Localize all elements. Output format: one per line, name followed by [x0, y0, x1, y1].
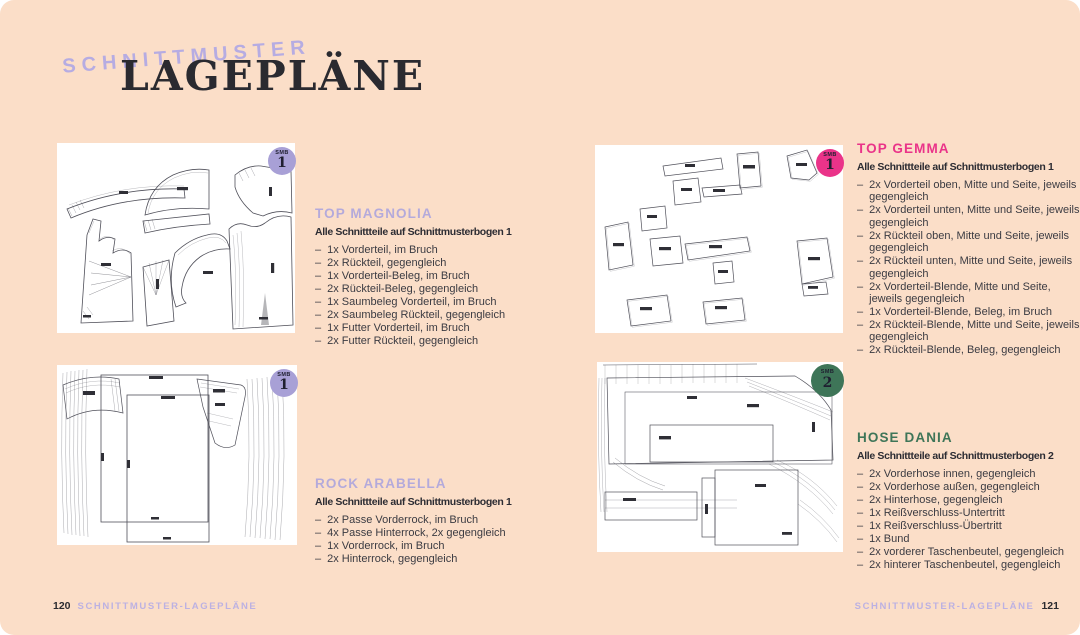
- pattern-diagram-top-magnolia: [57, 143, 295, 333]
- list-dash: –: [315, 335, 321, 347]
- footer-left: 120 SCHNITTMUSTER-LAGEPLÄNE: [53, 600, 257, 612]
- list-item: –1x Vorderteil-Blende, Beleg, im Bruch: [857, 306, 1080, 318]
- list-item-text: 1x Vorderteil, im Bruch: [327, 244, 438, 256]
- list-item-text: 1x Futter Vorderteil, im Bruch: [327, 322, 469, 334]
- list-dash: –: [857, 344, 863, 356]
- list-item: –1x Futter Vorderteil, im Bruch: [315, 322, 567, 334]
- sheet-badge-smb1-arabella: SMB 1: [270, 369, 298, 397]
- list-item-text: 2x Vorderteil-Blende, Mitte und Seite, j…: [869, 281, 1080, 306]
- list-item: –2x Hinterhose, gegengleich: [857, 494, 1080, 506]
- badge-number: 1: [279, 378, 289, 393]
- list-item: –1x Vorderteil, im Bruch: [315, 244, 567, 256]
- page-number-right: 121: [1041, 600, 1059, 612]
- running-title-right: SCHNITTMUSTER-LAGEPLÄNE: [855, 601, 1035, 612]
- list-item-text: 2x Rückteil, gegengleich: [327, 257, 446, 269]
- sheet-badge-smb1-gemma: SMB 1: [816, 149, 844, 177]
- list-item-text: 2x Hinterrock, gegengleich: [327, 553, 457, 565]
- list-item-text: 2x Saumbeleg Rückteil, gegengleich: [327, 309, 505, 321]
- pattern-diagram-rock-arabella: [57, 365, 297, 543]
- list-item: –2x vorderer Taschenbeutel, gegengleich: [857, 546, 1080, 558]
- list-item-text: 2x Vorderteil unten, Mitte und Seite, je…: [869, 204, 1080, 229]
- list-item-text: 2x Vorderhose innen, gegengleich: [869, 468, 1035, 480]
- section-hose-dania: HOSE DANIA Alle Schnittteile auf Schnitt…: [857, 430, 1080, 572]
- list-dash: –: [857, 546, 863, 558]
- section-subtitle: Alle Schnittteile auf Schnittmusterbogen…: [315, 496, 567, 508]
- list-item-text: 2x Rückteil unten, Mitte und Seite, jewe…: [869, 255, 1080, 280]
- list-item-text: 2x hinterer Taschenbeutel, gegengleich: [869, 559, 1060, 571]
- list-item-text: 2x vorderer Taschenbeutel, gegengleich: [869, 546, 1064, 558]
- list-item-text: 1x Vorderteil-Beleg, im Bruch: [327, 270, 469, 282]
- list-item: –2x Vorderhose innen, gegengleich: [857, 468, 1080, 480]
- badge-number: 2: [823, 376, 833, 391]
- running-title-left: SCHNITTMUSTER-LAGEPLÄNE: [78, 601, 258, 612]
- list-item: –2x Passe Vorderrock, im Bruch: [315, 514, 567, 526]
- list-dash: –: [857, 255, 863, 280]
- list-item-text: 2x Futter Rückteil, gegengleich: [327, 335, 478, 347]
- list-dash: –: [315, 296, 321, 308]
- section-title: ROCK ARABELLA: [315, 476, 567, 491]
- list-dash: –: [315, 514, 321, 526]
- pattern-diagram-top-gemma: [595, 145, 843, 333]
- list-dash: –: [857, 533, 863, 545]
- list-item: –2x Saumbeleg Rückteil, gegengleich: [315, 309, 567, 321]
- list-item-text: 2x Vorderteil oben, Mitte und Seite, jew…: [869, 179, 1080, 204]
- book-spread: SCHNITTMUSTER LAGEPLÄNE: [0, 0, 1080, 635]
- piece-list: –2x Vorderhose innen, gegengleich–2x Vor…: [857, 468, 1080, 571]
- list-item: –2x Vorderteil unten, Mitte und Seite, j…: [857, 204, 1080, 229]
- list-item-text: 2x Passe Vorderrock, im Bruch: [327, 514, 478, 526]
- section-title: HOSE DANIA: [857, 430, 1080, 445]
- section-title: TOP GEMMA: [857, 141, 1080, 156]
- piece-list: –2x Vorderteil oben, Mitte und Seite, je…: [857, 179, 1080, 357]
- section-subtitle: Alle Schnittteile auf Schnittmusterbogen…: [857, 450, 1080, 462]
- list-dash: –: [315, 553, 321, 565]
- pattern-diagram-hose-dania: [597, 362, 843, 552]
- page-title: LAGEPLÄNE: [120, 56, 425, 97]
- list-dash: –: [857, 520, 863, 532]
- list-item: –2x Hinterrock, gegengleich: [315, 553, 567, 565]
- list-item: –1x Bund: [857, 533, 1080, 545]
- list-item-text: 4x Passe Hinterrock, 2x gegengleich: [327, 527, 506, 539]
- sheet-badge-smb2-dania: SMB 2: [811, 364, 844, 397]
- list-item: –1x Vorderrock, im Bruch: [315, 540, 567, 552]
- list-item-text: 2x Rückteil-Blende, Beleg, gegengleich: [869, 344, 1060, 356]
- layout-panel-rock-arabella: SMB 1: [57, 365, 297, 545]
- list-item: –2x Rückteil unten, Mitte und Seite, jew…: [857, 255, 1080, 280]
- layout-panel-top-magnolia: SMB 1: [57, 143, 295, 333]
- list-item: –2x Futter Rückteil, gegengleich: [315, 335, 567, 347]
- section-top-gemma: TOP GEMMA Alle Schnittteile auf Schnittm…: [857, 141, 1080, 357]
- section-top-magnolia: TOP MAGNOLIA Alle Schnittteile auf Schni…: [315, 206, 567, 348]
- list-item: –2x Vorderhose außen, gegengleich: [857, 481, 1080, 493]
- list-item: –1x Saumbeleg Vorderteil, im Bruch: [315, 296, 567, 308]
- list-dash: –: [315, 257, 321, 269]
- list-item: –2x Rückteil-Beleg, gegengleich: [315, 283, 567, 295]
- list-item: –4x Passe Hinterrock, 2x gegengleich: [315, 527, 567, 539]
- list-dash: –: [857, 559, 863, 571]
- list-item-text: 2x Rückteil oben, Mitte und Seite, jewei…: [869, 230, 1080, 255]
- list-item-text: 2x Hinterhose, gegengleich: [869, 494, 1002, 506]
- list-item-text: 1x Vorderrock, im Bruch: [327, 540, 444, 552]
- list-item: –1x Reißverschluss-Untertritt: [857, 507, 1080, 519]
- list-dash: –: [857, 507, 863, 519]
- section-rock-arabella: ROCK ARABELLA Alle Schnittteile auf Schn…: [315, 476, 567, 566]
- list-dash: –: [857, 494, 863, 506]
- section-title: TOP MAGNOLIA: [315, 206, 567, 221]
- list-item: –2x Rückteil, gegengleich: [315, 257, 567, 269]
- list-dash: –: [857, 319, 863, 344]
- layout-panel-top-gemma: SMB 1: [595, 145, 843, 333]
- list-dash: –: [857, 468, 863, 480]
- piece-list: –1x Vorderteil, im Bruch–2x Rückteil, ge…: [315, 244, 567, 347]
- list-item-text: 2x Vorderhose außen, gegengleich: [869, 481, 1040, 493]
- list-item-text: 1x Reißverschluss-Untertritt: [869, 507, 1005, 519]
- list-dash: –: [315, 283, 321, 295]
- section-subtitle: Alle Schnittteile auf Schnittmusterbogen…: [315, 226, 567, 238]
- page-number-left: 120: [53, 600, 71, 612]
- list-item: –2x Vorderteil-Blende, Mitte und Seite, …: [857, 281, 1080, 306]
- sheet-badge-smb1-magnolia: SMB 1: [268, 147, 296, 175]
- list-item: –1x Reißverschluss-Übertritt: [857, 520, 1080, 532]
- layout-panel-hose-dania: SMB 2: [597, 362, 843, 552]
- list-dash: –: [857, 230, 863, 255]
- list-item: –2x Rückteil-Blende, Beleg, gegengleich: [857, 344, 1080, 356]
- list-item-text: 1x Vorderteil-Blende, Beleg, im Bruch: [869, 306, 1052, 318]
- list-dash: –: [857, 179, 863, 204]
- badge-number: 1: [825, 158, 835, 173]
- list-dash: –: [315, 309, 321, 321]
- list-dash: –: [315, 540, 321, 552]
- section-subtitle: Alle Schnittteile auf Schnittmusterbogen…: [857, 161, 1080, 173]
- list-item: –2x hinterer Taschenbeutel, gegengleich: [857, 559, 1080, 571]
- list-item-text: 1x Reißverschluss-Übertritt: [869, 520, 1002, 532]
- list-item-text: 1x Saumbeleg Vorderteil, im Bruch: [327, 296, 496, 308]
- list-item-text: 2x Rückteil-Beleg, gegengleich: [327, 283, 478, 295]
- list-item-text: 2x Rückteil-Blende, Mitte und Seite, jew…: [869, 319, 1080, 344]
- list-item: –2x Rückteil oben, Mitte und Seite, jewe…: [857, 230, 1080, 255]
- list-dash: –: [857, 306, 863, 318]
- list-dash: –: [315, 322, 321, 334]
- footer-right: SCHNITTMUSTER-LAGEPLÄNE 121: [855, 600, 1059, 612]
- piece-list: –2x Passe Vorderrock, im Bruch–4x Passe …: [315, 514, 567, 565]
- list-item: –2x Rückteil-Blende, Mitte und Seite, je…: [857, 319, 1080, 344]
- list-dash: –: [315, 527, 321, 539]
- list-dash: –: [315, 244, 321, 256]
- list-dash: –: [857, 204, 863, 229]
- list-item: –2x Vorderteil oben, Mitte und Seite, je…: [857, 179, 1080, 204]
- list-item: –1x Vorderteil-Beleg, im Bruch: [315, 270, 567, 282]
- list-dash: –: [315, 270, 321, 282]
- list-dash: –: [857, 281, 863, 306]
- badge-number: 1: [277, 156, 287, 171]
- list-item-text: 1x Bund: [869, 533, 909, 545]
- list-dash: –: [857, 481, 863, 493]
